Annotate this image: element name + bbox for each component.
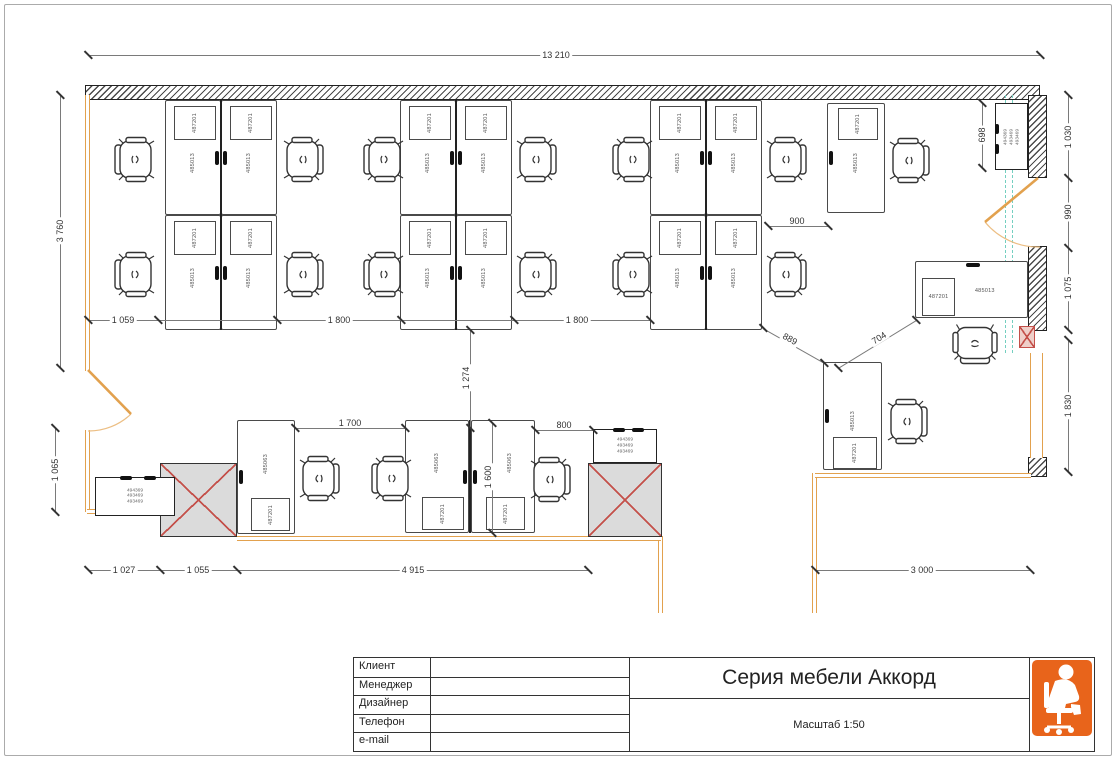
cabinet-code: 494369 <box>127 488 143 494</box>
office-chair-icon <box>764 136 808 183</box>
desk: 487201485013 <box>827 103 885 213</box>
office-chair-icon <box>281 251 325 298</box>
desk: 487201485063 <box>405 420 469 533</box>
cabinet: 494369493469493469 <box>95 477 175 516</box>
cabinet-codes: 494369493469493469 <box>617 437 633 454</box>
door-swing <box>980 174 1052 252</box>
desk-divider <box>469 420 471 533</box>
desk: 487201485013 <box>915 261 1028 318</box>
cabinet-code: 493469 <box>617 443 633 449</box>
office-chair-icon <box>952 322 999 366</box>
screen-panel: 487201 <box>174 221 216 255</box>
drawing-scale: Масштаб 1:50 <box>629 698 1029 751</box>
field-label-phone: Телефон <box>354 714 431 733</box>
desk: 487201485013 <box>221 100 277 215</box>
desk-grommet <box>450 151 454 165</box>
desk-code: 485013 <box>190 153 196 173</box>
screen-panel: 487201 <box>251 498 290 531</box>
desk-grommet <box>473 470 477 484</box>
desk: 487201485013 <box>165 215 221 330</box>
office-chair-icon <box>764 251 808 298</box>
cabinet: 494369493469493469 <box>593 429 657 463</box>
cabinet-codes: 494369493469493469 <box>1003 128 1020 144</box>
desk: 487201485013 <box>165 100 221 215</box>
dimension-label: 4 915 <box>400 565 427 575</box>
desk-grommet <box>829 151 833 165</box>
field-row-phone: Телефон <box>354 714 630 734</box>
screen-panel: 487201 <box>409 106 451 140</box>
screen-code: 487201 <box>427 113 433 133</box>
drawing-title: Серия мебели Аккорд <box>629 658 1029 699</box>
field-value-client <box>432 658 629 677</box>
desk: 487201485063 <box>237 420 295 534</box>
dimension-label: 1 274 <box>461 365 471 392</box>
desk: 487201485013 <box>650 215 706 330</box>
dimension-label: 698 <box>977 125 987 144</box>
office-chair-icon <box>611 251 655 298</box>
dimension-label: 1 027 <box>111 565 138 575</box>
desk-code: 485013 <box>425 153 431 173</box>
screen-code: 487201 <box>503 504 509 524</box>
office-chair-icon <box>514 136 558 183</box>
office-chair-icon <box>113 136 157 183</box>
desk-grommet <box>458 151 462 165</box>
screen-code: 487201 <box>677 113 683 133</box>
desk-code: 485013 <box>675 153 681 173</box>
desk: 487201485013 <box>400 215 456 330</box>
desk-grommet <box>239 470 243 484</box>
screen-code: 487201 <box>852 443 858 463</box>
person-on-chair-icon <box>1032 660 1092 736</box>
desk-grommet <box>450 266 454 280</box>
screen-code: 487201 <box>268 505 274 525</box>
screen-code: 487201 <box>192 113 198 133</box>
screen-code: 487201 <box>929 294 949 300</box>
desk-grommet <box>700 151 704 165</box>
title-block: Клиент Менеджер Дизайнер Телефон e-mail … <box>353 657 1095 752</box>
dimension-line <box>295 428 405 429</box>
field-row-designer: Дизайнер <box>354 695 630 715</box>
desk-code: 485063 <box>434 453 440 473</box>
dimension-label: 1 800 <box>564 315 591 325</box>
desk-code: 485013 <box>975 288 995 294</box>
cabinet-handle <box>613 428 625 432</box>
screen-panel: 487201 <box>922 278 955 316</box>
desk-code: 485063 <box>507 453 513 473</box>
desk: 487201485013 <box>706 215 762 330</box>
cabinet-code: 494369 <box>617 437 633 443</box>
screen-panel: 487201 <box>230 221 272 255</box>
wall-window-line <box>85 95 90 371</box>
dimension-label: 1 600 <box>483 464 493 491</box>
office-chair-icon <box>611 136 655 183</box>
dimension-line <box>768 226 828 227</box>
screen-panel: 487201 <box>659 106 701 140</box>
screen-panel: 487201 <box>659 221 701 255</box>
dimension-label: 1 700 <box>337 418 364 428</box>
office-chair-icon <box>370 455 414 502</box>
screen-panel: 487201 <box>715 221 757 255</box>
dimension-label: 3 000 <box>909 565 936 575</box>
screen-panel: 487201 <box>838 108 878 140</box>
office-chair-icon <box>362 136 406 183</box>
dimension-label: 13 210 <box>540 50 572 60</box>
dimension-line <box>535 430 593 431</box>
desk-code: 485013 <box>731 268 737 288</box>
wall-window-line <box>1030 353 1043 458</box>
dimension-label: 800 <box>554 420 573 430</box>
screen-code: 487201 <box>677 228 683 248</box>
wall-hatched <box>1028 246 1047 331</box>
desk-code: 485013 <box>481 268 487 288</box>
wall-window-line <box>658 536 663 613</box>
drawing-sheet: 4943694934694934694943694934694934694943… <box>0 0 1120 760</box>
desk-grommet <box>708 266 712 280</box>
field-label-designer: Дизайнер <box>354 695 431 714</box>
desk-divider <box>220 100 222 330</box>
desk-code: 485013 <box>190 268 196 288</box>
field-row-client: Клиент <box>354 658 630 678</box>
dimension-label: 1 030 <box>1063 124 1073 151</box>
screen-code: 487201 <box>248 228 254 248</box>
field-value-designer <box>432 695 629 714</box>
dimension-label: 1 055 <box>185 565 212 575</box>
field-label-manager: Менеджер <box>354 677 431 696</box>
cabinet-handle <box>995 144 999 154</box>
desk-code: 485013 <box>246 153 252 173</box>
dimension-label: 990 <box>1063 202 1073 221</box>
desk-grommet <box>708 151 712 165</box>
cabinet-code: 493469 <box>127 494 143 500</box>
cabinet-handle <box>120 476 132 480</box>
cabinet-code: 494369 <box>1003 128 1009 144</box>
desk-code: 485013 <box>731 153 737 173</box>
desk-divider <box>705 100 707 330</box>
office-chair-icon <box>885 398 929 445</box>
wall-hatched <box>1028 95 1047 178</box>
screen-panel: 487201 <box>409 221 451 255</box>
field-value-manager <box>432 677 629 696</box>
dimension-label: 704 <box>868 329 889 348</box>
desk-code: 485013 <box>246 268 252 288</box>
desk-grommet <box>700 266 704 280</box>
desk-grommet <box>223 151 227 165</box>
dimension-label: 1 075 <box>1063 275 1073 302</box>
vendor-logo <box>1029 658 1094 751</box>
field-label-client: Клиент <box>354 658 431 677</box>
office-chair-icon <box>113 251 157 298</box>
desk-code: 485013 <box>853 153 859 173</box>
cabinet-code: 493469 <box>1014 128 1020 144</box>
screen-code: 487201 <box>248 113 254 133</box>
wall-hatched <box>85 85 1040 100</box>
screen-code: 487201 <box>483 228 489 248</box>
screen-panel: 487201 <box>715 106 757 140</box>
screen-panel: 487201 <box>230 106 272 140</box>
screen-code: 487201 <box>733 228 739 248</box>
desk-code: 485013 <box>481 153 487 173</box>
desk: 487201485013 <box>823 362 882 470</box>
cabinet-handle <box>632 428 644 432</box>
dimension-label: 3 760 <box>55 218 65 245</box>
desk-grommet <box>458 266 462 280</box>
desk-code: 485013 <box>675 268 681 288</box>
cabinet-code: 493469 <box>127 499 143 505</box>
screen-code: 487201 <box>733 113 739 133</box>
desk-grommet <box>215 151 219 165</box>
screen-panel: 487201 <box>422 497 464 530</box>
desk-grommet <box>223 266 227 280</box>
cabinet-handle <box>144 476 156 480</box>
cabinet-code: 493469 <box>1009 128 1015 144</box>
riser-crossed <box>1019 326 1035 348</box>
desk: 487201485013 <box>706 100 762 215</box>
screen-panel: 487201 <box>465 221 507 255</box>
field-value-phone <box>432 714 629 733</box>
floor-plan: 4943694934694934694943694934694934694943… <box>0 0 1120 760</box>
cabinet-code: 493469 <box>617 449 633 455</box>
dimension-label: 1 065 <box>50 457 60 484</box>
column-crossed <box>588 463 662 537</box>
wall-window-line <box>812 473 817 613</box>
office-chair-icon <box>362 251 406 298</box>
dimension-label: 889 <box>779 330 800 348</box>
desk-divider <box>455 100 457 330</box>
screen-code: 487201 <box>192 228 198 248</box>
office-chair-icon <box>528 456 572 503</box>
screen-code: 487201 <box>427 228 433 248</box>
desk-grommet <box>215 266 219 280</box>
wall-window-line <box>815 473 1031 478</box>
screen-code: 487201 <box>855 114 861 134</box>
desk-grommet <box>966 263 980 267</box>
cabinet-codes: 494369493469493469 <box>127 488 143 505</box>
desk-code: 485013 <box>425 268 431 288</box>
desk-code: 485063 <box>263 454 269 474</box>
screen-code: 487201 <box>483 113 489 133</box>
desk: 487201485013 <box>650 100 706 215</box>
desk: 487201485013 <box>456 215 512 330</box>
field-value-email <box>432 732 629 751</box>
office-chair-icon <box>887 137 931 184</box>
office-chair-icon <box>297 455 341 502</box>
office-chair-icon <box>281 136 325 183</box>
screen-panel: 487201 <box>833 437 877 469</box>
desk: 487201485013 <box>221 215 277 330</box>
desk-grommet <box>463 470 467 484</box>
dimension-label: 900 <box>787 216 806 226</box>
screen-panel: 487201 <box>465 106 507 140</box>
desk-code: 485013 <box>850 411 856 431</box>
dimension-label: 1 059 <box>110 315 137 325</box>
cabinet-handle <box>995 124 999 134</box>
desk: 487201485063 <box>471 420 535 533</box>
dimension-label: 1 800 <box>326 315 353 325</box>
field-row-manager: Менеджер <box>354 677 630 697</box>
screen-code: 487201 <box>440 504 446 524</box>
screen-panel: 487201 <box>174 106 216 140</box>
cabinet: 494369493469493469 <box>995 103 1028 170</box>
desk: 487201485013 <box>456 100 512 215</box>
door-swing <box>84 366 156 444</box>
office-chair-icon <box>514 251 558 298</box>
desk-grommet <box>825 409 829 423</box>
field-label-email: e-mail <box>354 732 431 751</box>
dimension-label: 1 830 <box>1063 393 1073 420</box>
desk: 487201485013 <box>400 100 456 215</box>
field-row-email: e-mail <box>354 732 630 751</box>
